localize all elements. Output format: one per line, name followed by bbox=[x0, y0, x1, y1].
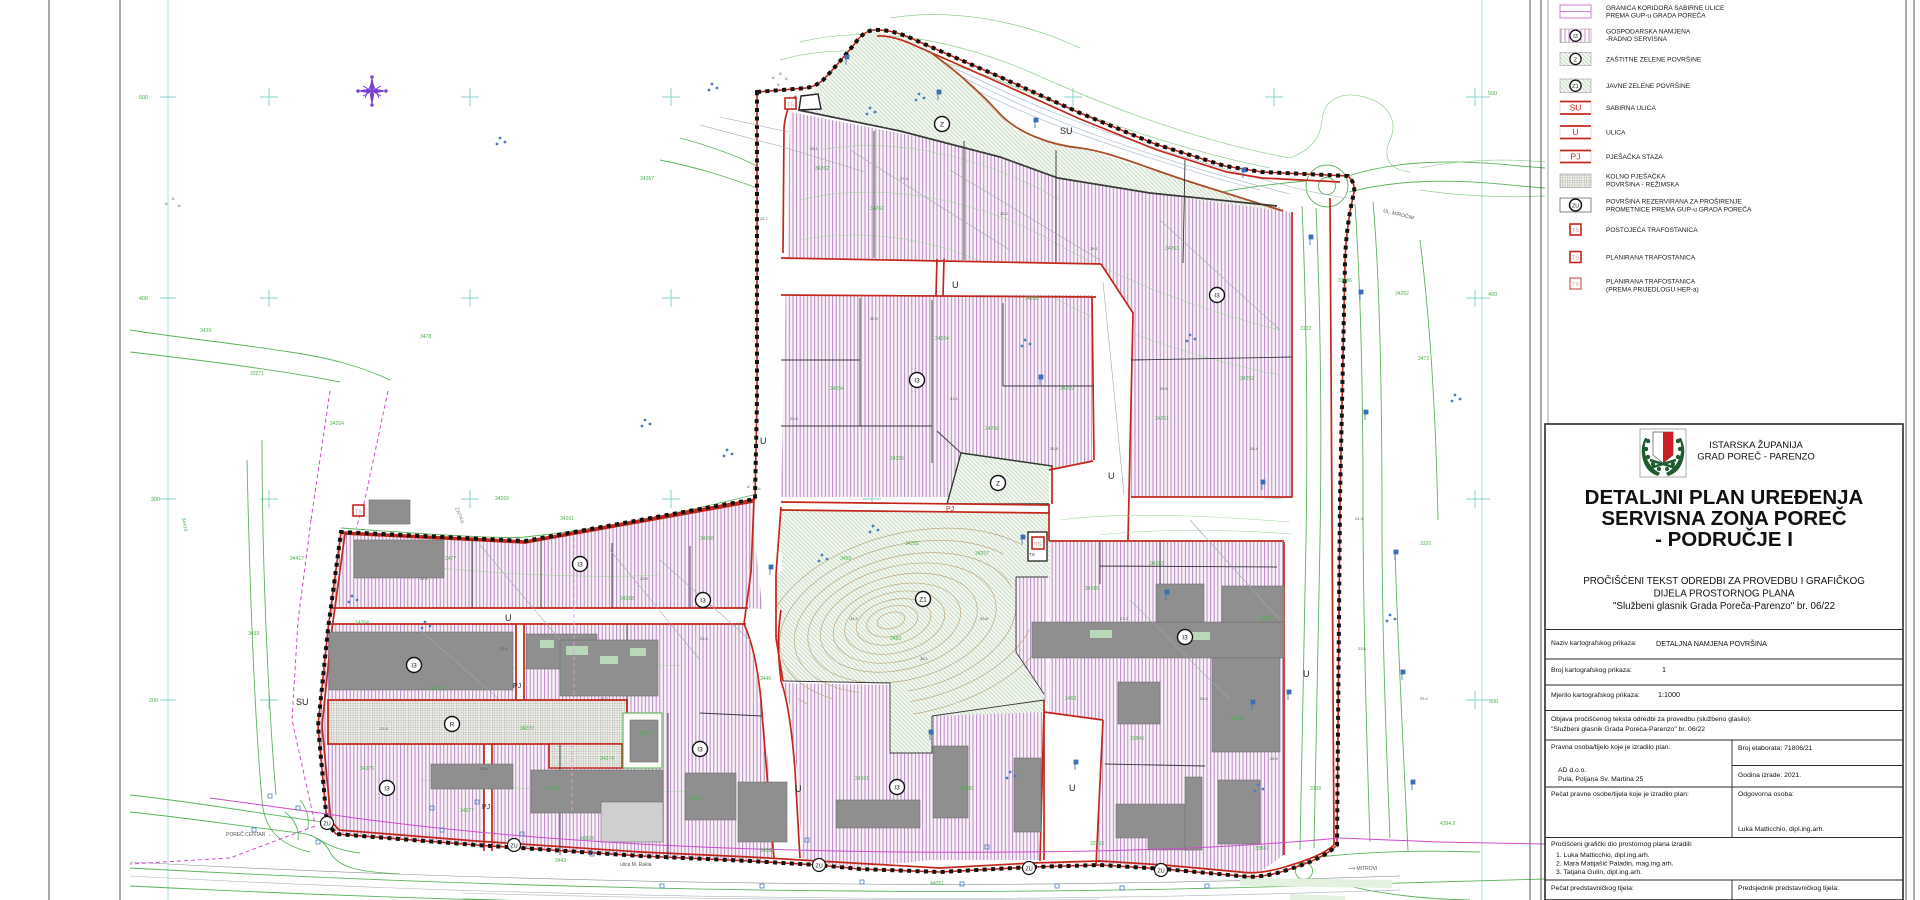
svg-text:U: U bbox=[1572, 127, 1578, 137]
svg-text:⟶ MITROVI: ⟶ MITROVI bbox=[1348, 866, 1377, 872]
svg-text:34279: 34279 bbox=[690, 796, 704, 802]
svg-text:34276: 34276 bbox=[360, 766, 374, 772]
svg-text:Pečat pravne osobe/tijela koje: Pečat pravne osobe/tijela koje je izradi… bbox=[1551, 791, 1689, 798]
svg-text:ulica M. Rakla: ulica M. Rakla bbox=[620, 862, 652, 868]
svg-text:24.2: 24.2 bbox=[600, 696, 609, 701]
svg-text:34281: 34281 bbox=[855, 776, 869, 782]
svg-text:Odgovorna osoba:: Odgovorna osoba: bbox=[1738, 791, 1794, 798]
svg-text:ZU: ZU bbox=[323, 821, 330, 827]
svg-text:PLANIRANA TRAFOSTANICA: PLANIRANA TRAFOSTANICA bbox=[1606, 255, 1696, 262]
svg-text:34284: 34284 bbox=[1230, 716, 1244, 722]
svg-text:40824: 40824 bbox=[580, 836, 594, 842]
svg-text:3. Tatjana Gulin, dipl.ing.arh: 3. Tatjana Gulin, dipl.ing.arh. bbox=[1556, 869, 1642, 876]
svg-text:Broj kartografskog prikaza:: Broj kartografskog prikaza: bbox=[1551, 667, 1632, 674]
svg-text:SU: SU bbox=[1060, 126, 1073, 136]
svg-text:Z1: Z1 bbox=[1572, 84, 1578, 90]
svg-text:SU: SU bbox=[296, 697, 309, 707]
svg-text:25.3: 25.3 bbox=[700, 636, 709, 641]
svg-text:34280: 34280 bbox=[760, 848, 774, 854]
svg-text:Predsjednik predstavničkog tij: Predsjednik predstavničkog tijela: bbox=[1738, 885, 1839, 892]
svg-text:(PREMA PRIJEDLOGU HEP-a): (PREMA PRIJEDLOGU HEP-a) bbox=[1606, 287, 1699, 294]
svg-text:33286: 33286 bbox=[1338, 278, 1352, 284]
svg-text:PROČIŠĆENI TEKST ODREDBI ZA PR: PROČIŠĆENI TEKST ODREDBI ZA PROVEDBU I G… bbox=[1583, 576, 1865, 587]
svg-text:30.8: 30.8 bbox=[1050, 446, 1059, 451]
svg-text:44051: 44051 bbox=[930, 881, 944, 887]
svg-text:1: 1 bbox=[1662, 665, 1666, 674]
svg-text:34263: 34263 bbox=[870, 206, 884, 212]
svg-text:POVRŠINA - REŽIMSKA: POVRŠINA - REŽIMSKA bbox=[1606, 180, 1680, 189]
svg-text:I3: I3 bbox=[1214, 293, 1220, 300]
svg-text:26.8: 26.8 bbox=[1200, 696, 1209, 701]
svg-text:"Službeni glasnik Grada Poreča: "Službeni glasnik Grada Poreča-Parenzo" … bbox=[1613, 601, 1835, 612]
svg-text:Mjerilo kartografskog prikaza:: Mjerilo kartografskog prikaza: bbox=[1551, 692, 1640, 699]
svg-text:200: 200 bbox=[149, 698, 158, 704]
svg-text:22.1: 22.1 bbox=[420, 576, 429, 581]
svg-text:28.8: 28.8 bbox=[790, 416, 799, 421]
svg-text:34417: 34417 bbox=[290, 556, 304, 562]
svg-text:3439: 3439 bbox=[200, 328, 211, 334]
svg-text:29.6: 29.6 bbox=[1160, 386, 1169, 391]
svg-text:- PODRUČJE I: - PODRUČJE I bbox=[1655, 527, 1793, 551]
svg-text:Broj elaborata: 71806/21: Broj elaborata: 71806/21 bbox=[1738, 745, 1813, 752]
svg-text:ULICA: ULICA bbox=[1606, 130, 1626, 137]
svg-text:34266: 34266 bbox=[700, 536, 714, 542]
svg-text:23.8: 23.8 bbox=[1358, 646, 1367, 651]
svg-text:1. Luka Matticchio, dipl.ing.a: 1. Luka Matticchio, dipl.ing.arh. bbox=[1556, 852, 1650, 859]
svg-text:3320: 3320 bbox=[1420, 541, 1431, 547]
svg-text:4394.2: 4394.2 bbox=[1440, 821, 1456, 827]
svg-text:33271: 33271 bbox=[250, 371, 264, 377]
svg-text:34261: 34261 bbox=[560, 516, 574, 522]
svg-text:DETALJNA NAMJENA POVRŠINA: DETALJNA NAMJENA POVRŠINA bbox=[1656, 639, 1767, 648]
svg-text:PROMETNICE PREMA GUP-u GRADA P: PROMETNICE PREMA GUP-u GRADA POREČA bbox=[1606, 205, 1752, 214]
svg-text:33847: 33847 bbox=[1255, 846, 1269, 852]
svg-text:34285: 34285 bbox=[1085, 586, 1099, 592]
svg-text:SU: SU bbox=[1570, 103, 1582, 113]
svg-text:SERVISNA ZONA POREČ: SERVISNA ZONA POREČ bbox=[1601, 506, 1846, 530]
svg-text:3478: 3478 bbox=[420, 334, 431, 340]
svg-text:Luka Matticchio, dipl.ing.arh.: Luka Matticchio, dipl.ing.arh. bbox=[1738, 826, 1824, 833]
svg-text:TS: TS bbox=[355, 509, 362, 515]
svg-text:I3: I3 bbox=[894, 785, 900, 792]
svg-text:34274: 34274 bbox=[600, 756, 614, 762]
svg-text:500: 500 bbox=[139, 95, 148, 101]
svg-text:SABIRNA ULICA: SABIRNA ULICA bbox=[1606, 105, 1656, 112]
svg-text:31.2: 31.2 bbox=[950, 396, 959, 401]
svg-text:I3: I3 bbox=[700, 598, 706, 605]
svg-text:I3: I3 bbox=[411, 663, 417, 670]
svg-text:28.4: 28.4 bbox=[1250, 446, 1259, 451]
svg-text:34264: 34264 bbox=[330, 421, 344, 427]
svg-text:3477: 3477 bbox=[445, 556, 456, 562]
svg-text:34259: 34259 bbox=[1060, 386, 1074, 392]
svg-text:GRAD POREČ - PARENZO: GRAD POREČ - PARENZO bbox=[1697, 452, 1815, 463]
svg-text:34267: 34267 bbox=[640, 176, 654, 182]
svg-text:GRANICA KORIDORA SABIRNE ULICE: GRANICA KORIDORA SABIRNE ULICE bbox=[1606, 5, 1725, 12]
svg-text:TS: TS bbox=[1029, 552, 1035, 557]
svg-text:34257: 34257 bbox=[975, 551, 989, 557]
svg-text:300: 300 bbox=[1489, 699, 1498, 705]
svg-text:34251: 34251 bbox=[1155, 416, 1169, 422]
svg-text:34271: 34271 bbox=[430, 686, 444, 692]
svg-text:POVRŠINA REZERVIRANA ZA PROŠIR: POVRŠINA REZERVIRANA ZA PROŠIRENJE bbox=[1606, 197, 1742, 206]
svg-text:3460: 3460 bbox=[890, 636, 901, 642]
svg-text:27.4: 27.4 bbox=[900, 176, 909, 181]
svg-text:34273: 34273 bbox=[640, 731, 654, 737]
svg-text:34262: 34262 bbox=[815, 166, 829, 172]
svg-text:3446: 3446 bbox=[760, 676, 771, 682]
svg-text:U: U bbox=[952, 280, 959, 290]
svg-text:34272: 34272 bbox=[520, 726, 534, 732]
svg-text:I3: I3 bbox=[914, 378, 920, 385]
svg-text:2. Mara Matijašić Paladin, mag: 2. Mara Matijašić Paladin, mag.ing.arh. bbox=[1556, 861, 1674, 868]
svg-text:3433: 3433 bbox=[248, 631, 259, 637]
svg-text:300: 300 bbox=[151, 497, 160, 503]
svg-text:GOSPODARSKA NAMJENA: GOSPODARSKA NAMJENA bbox=[1606, 29, 1691, 36]
svg-text:U: U bbox=[760, 436, 767, 446]
svg-text:POSTOJEĆA TRAFOSTANICA: POSTOJEĆA TRAFOSTANICA bbox=[1606, 225, 1698, 234]
svg-text:23.9: 23.9 bbox=[640, 576, 649, 581]
svg-text:25.7: 25.7 bbox=[760, 216, 769, 221]
svg-text:34268: 34268 bbox=[620, 596, 634, 602]
svg-text:34262: 34262 bbox=[1395, 291, 1409, 297]
svg-text:-RADNO SERVISNA: -RADNO SERVISNA bbox=[1606, 36, 1668, 43]
svg-text:TS: TS bbox=[787, 102, 794, 108]
svg-text:ZU: ZU bbox=[815, 863, 822, 869]
svg-text:I3: I3 bbox=[384, 786, 390, 793]
svg-text:33846: 33846 bbox=[1130, 736, 1144, 742]
svg-text:1:1000: 1:1000 bbox=[1658, 690, 1680, 699]
svg-text:PJ: PJ bbox=[1571, 151, 1581, 161]
svg-text:29.1: 29.1 bbox=[1090, 246, 1099, 251]
svg-text:23.5: 23.5 bbox=[500, 646, 509, 651]
svg-text:34286: 34286 bbox=[1260, 616, 1274, 622]
svg-text:34258: 34258 bbox=[985, 426, 999, 432]
svg-text:Pravna osoba/tijelo koje je iz: Pravna osoba/tijelo koje je izradilo pla… bbox=[1551, 744, 1671, 751]
svg-text:DETALJNI PLAN UREĐENJA: DETALJNI PLAN UREĐENJA bbox=[1585, 486, 1864, 509]
svg-text:PREMA GUP-u GRADA POREČA: PREMA GUP-u GRADA POREČA bbox=[1606, 11, 1706, 20]
svg-text:ZU: ZU bbox=[1572, 203, 1579, 209]
svg-text:TS: TS bbox=[1572, 228, 1579, 234]
svg-text:34255: 34255 bbox=[905, 541, 919, 547]
svg-text:ZU: ZU bbox=[510, 843, 517, 849]
svg-text:POREČ CENTAR: POREČ CENTAR bbox=[226, 831, 266, 838]
svg-text:34256: 34256 bbox=[890, 456, 904, 462]
svg-text:34264: 34264 bbox=[935, 336, 949, 342]
svg-text:←: ← bbox=[268, 832, 273, 838]
svg-text:Pula, Poljana Sv. Martina 25: Pula, Poljana Sv. Martina 25 bbox=[1558, 776, 1643, 783]
svg-text:Naziv kartografskog prikaza:: Naziv kartografskog prikaza: bbox=[1551, 640, 1637, 647]
svg-text:34.2: 34.2 bbox=[850, 616, 859, 621]
svg-text:TS: TS bbox=[1572, 282, 1579, 288]
svg-text:30.3: 30.3 bbox=[870, 316, 879, 321]
svg-text:34253: 34253 bbox=[1165, 246, 1179, 252]
svg-text:34282: 34282 bbox=[960, 786, 974, 792]
svg-text:I3: I3 bbox=[1573, 34, 1578, 40]
svg-text:24.3: 24.3 bbox=[1355, 516, 1364, 521]
svg-text:21.8: 21.8 bbox=[380, 726, 389, 731]
svg-text:33.8: 33.8 bbox=[980, 616, 989, 621]
svg-text:3472: 3472 bbox=[1418, 356, 1429, 362]
svg-text:ISTARSKA ŽUPANIJA: ISTARSKA ŽUPANIJA bbox=[1709, 440, 1803, 451]
svg-text:U: U bbox=[1303, 669, 1310, 679]
svg-text:PLANIRANA TRAFOSTANICA: PLANIRANA TRAFOSTANICA bbox=[1606, 279, 1696, 286]
svg-text:26.1: 26.1 bbox=[810, 146, 819, 151]
svg-text:TS: TS bbox=[1034, 542, 1041, 548]
svg-text:3443: 3443 bbox=[555, 858, 566, 864]
svg-text:PJEŠAČKA STAZA: PJEŠAČKA STAZA bbox=[1606, 152, 1663, 161]
svg-text:PJ: PJ bbox=[946, 506, 954, 513]
svg-text:U: U bbox=[505, 613, 512, 623]
svg-text:34278: 34278 bbox=[545, 786, 559, 792]
svg-text:I3: I3 bbox=[1182, 635, 1188, 642]
svg-text:U: U bbox=[795, 784, 802, 794]
svg-text:JAVNE ZELENE POVRŠINE: JAVNE ZELENE POVRŠINE bbox=[1606, 81, 1691, 90]
svg-text:35.1: 35.1 bbox=[920, 656, 929, 661]
svg-text:400: 400 bbox=[139, 296, 148, 302]
svg-text:Z: Z bbox=[940, 122, 944, 129]
svg-text:22.6: 22.6 bbox=[480, 766, 489, 771]
svg-text:34254: 34254 bbox=[830, 386, 844, 392]
svg-text:TS: TS bbox=[1572, 256, 1579, 262]
svg-text:I3: I3 bbox=[577, 562, 583, 569]
svg-text:U: U bbox=[1069, 783, 1076, 793]
svg-text:500: 500 bbox=[1488, 91, 1497, 97]
svg-text:32963: 32963 bbox=[1090, 841, 1104, 847]
svg-text:Godina izrade: 2021.: Godina izrade: 2021. bbox=[1738, 772, 1801, 779]
svg-text:PJ: PJ bbox=[482, 804, 490, 811]
svg-text:34269: 34269 bbox=[495, 496, 509, 502]
svg-text:3459: 3459 bbox=[840, 556, 851, 562]
svg-text:3463: 3463 bbox=[1065, 696, 1076, 702]
svg-text:Z: Z bbox=[996, 481, 1000, 488]
svg-text:ZU: ZU bbox=[1157, 868, 1164, 874]
svg-text:Z1: Z1 bbox=[919, 597, 927, 604]
svg-text:25.9: 25.9 bbox=[1270, 756, 1279, 761]
svg-text:34265: 34265 bbox=[1025, 296, 1039, 302]
svg-text:34252: 34252 bbox=[1240, 376, 1254, 382]
svg-text:ZAŠTITNE ZELENE POVRŠINE: ZAŠTITNE ZELENE POVRŠINE bbox=[1606, 54, 1702, 63]
svg-text:14264: 14264 bbox=[355, 620, 369, 626]
svg-text:ZU: ZU bbox=[1025, 866, 1032, 872]
svg-text:400: 400 bbox=[1488, 292, 1497, 298]
svg-text:3102: 3102 bbox=[1300, 326, 1311, 332]
svg-text:28.2: 28.2 bbox=[1000, 211, 1009, 216]
svg-text:34283: 34283 bbox=[1150, 561, 1164, 567]
svg-text:DIJELA PROSTORNOG PLANA: DIJELA PROSTORNOG PLANA bbox=[1654, 589, 1795, 600]
svg-text:23.2: 23.2 bbox=[1420, 696, 1429, 701]
svg-text:Pečat predstavničkog tijela:: Pečat predstavničkog tijela: bbox=[1551, 885, 1634, 892]
svg-text:Pročišćeni grafički dio prosto: Pročišćeni grafički dio prostornog plana… bbox=[1551, 841, 1693, 848]
svg-text:I3: I3 bbox=[697, 747, 703, 754]
svg-text:Objava pročišćenog teksta odre: Objava pročišćenog teksta odredbi za pro… bbox=[1551, 716, 1752, 723]
svg-text:U: U bbox=[1108, 471, 1115, 481]
svg-text:PJ: PJ bbox=[513, 683, 521, 690]
svg-text:KOLNO PJEŠAČKA: KOLNO PJEŠAČKA bbox=[1606, 172, 1666, 181]
svg-text:3106: 3106 bbox=[1310, 786, 1321, 792]
svg-text:27.2: 27.2 bbox=[1120, 616, 1129, 621]
svg-text:R: R bbox=[450, 722, 455, 729]
svg-text:"Službeni glasnik Grada Poreča: "Službeni glasnik Grada Poreča-Parenzo" … bbox=[1551, 726, 1705, 733]
svg-text:34277: 34277 bbox=[460, 808, 474, 814]
svg-text:AD d.o.o.: AD d.o.o. bbox=[1558, 767, 1586, 774]
